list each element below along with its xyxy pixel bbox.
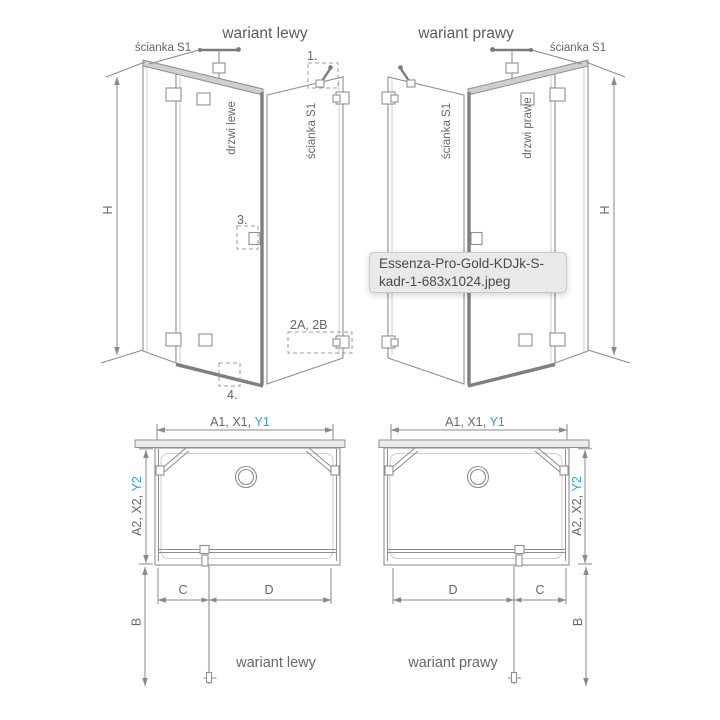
depth-dimension: A2, X2,Y2 bbox=[130, 449, 153, 564]
d-label: D bbox=[264, 583, 273, 597]
technical-drawing-canvas: H 1. 3. 2A, 2B 4. wariant lewy ścianka S… bbox=[0, 0, 720, 720]
b-label: B bbox=[130, 618, 144, 626]
width-dim-prefix: A1, X1, bbox=[210, 415, 251, 429]
right-view-title: wariant prawy bbox=[417, 25, 514, 42]
cd-dimension: D C bbox=[393, 568, 566, 605]
door-panel bbox=[469, 73, 555, 385]
open-door bbox=[508, 566, 521, 684]
depth-dim-prefix: A2, X2, bbox=[570, 495, 584, 536]
wall-bar bbox=[379, 440, 589, 448]
svg-text:A1, X1,Y1: A1, X1,Y1 bbox=[445, 415, 505, 429]
filename-tooltip-line2: kadr-1-683x1024.jpeg bbox=[379, 273, 557, 291]
cd-dimension: C D bbox=[158, 568, 331, 605]
svg-text:A1, X1,Y1: A1, X1,Y1 bbox=[210, 415, 270, 429]
wall-bar bbox=[135, 440, 345, 448]
depth-dimension: A2, X2,Y2 bbox=[570, 449, 592, 564]
svg-text:A2, X2,Y2: A2, X2,Y2 bbox=[130, 476, 144, 536]
b-dimension: B bbox=[571, 567, 586, 686]
callout-4-label: 4. bbox=[227, 388, 237, 402]
left-side-wall-label: ścianka S1 bbox=[306, 103, 318, 159]
left-wall-label: ścianka S1 bbox=[135, 42, 191, 54]
filename-tooltip: Essenza-Pro-Gold-KDJk-S- kadr-1-683x1024… bbox=[369, 252, 567, 293]
height-dimension: H bbox=[586, 62, 630, 363]
right-wall-label: ścianka S1 bbox=[550, 42, 606, 54]
depth-dim-accent: Y2 bbox=[130, 476, 144, 491]
d-label: D bbox=[448, 583, 457, 597]
left-plan-view: A1, X1,Y1 bbox=[130, 415, 346, 686]
svg-text:A2, X2,Y2: A2, X2,Y2 bbox=[570, 476, 584, 536]
right-plan-view: A1, X1,Y1 bbox=[379, 415, 592, 686]
c-label: C bbox=[535, 583, 544, 597]
width-dim-prefix: A1, X1, bbox=[445, 415, 486, 429]
left-plan-caption: wariant lewy bbox=[235, 655, 317, 671]
depth-dim-prefix: A2, X2, bbox=[130, 495, 144, 536]
right-door-label: drzwi prawe bbox=[522, 97, 534, 158]
c-label: C bbox=[178, 583, 187, 597]
width-dimension: A1, X1,Y1 bbox=[157, 415, 333, 441]
right-3d-view: H wariant prawy ścianka S1 ścianka S1 dr… bbox=[382, 25, 630, 386]
height-dimension: H bbox=[101, 62, 145, 363]
callout-3-label: 3. bbox=[237, 213, 247, 227]
open-door bbox=[204, 566, 217, 684]
callout-1-label: 1. bbox=[307, 49, 317, 63]
right-side-wall-label: ścianka S1 bbox=[441, 103, 453, 159]
b-label: B bbox=[571, 618, 585, 626]
height-label: H bbox=[598, 205, 612, 214]
shower-tray bbox=[155, 448, 340, 565]
width-dimension: A1, X1,Y1 bbox=[391, 415, 567, 441]
wall-panel bbox=[555, 63, 588, 363]
right-plan-caption: wariant prawy bbox=[407, 655, 498, 671]
depth-dim-accent: Y2 bbox=[570, 476, 584, 491]
wall-panel bbox=[143, 63, 176, 363]
width-dim-accent: Y1 bbox=[490, 415, 505, 429]
filename-tooltip-line1: Essenza-Pro-Gold-KDJk-S- bbox=[379, 255, 557, 273]
left-view-title: wariant lewy bbox=[221, 25, 308, 42]
width-dim-accent: Y1 bbox=[255, 415, 270, 429]
left-door-label: drzwi lewe bbox=[226, 101, 238, 155]
door-panel bbox=[176, 73, 262, 385]
side-wall-panel bbox=[267, 77, 343, 384]
height-label: H bbox=[101, 205, 115, 214]
b-dimension: B bbox=[130, 567, 146, 686]
left-3d-view: H 1. 3. 2A, 2B 4. wariant lewy ścianka S… bbox=[101, 25, 352, 402]
shower-tray bbox=[384, 448, 569, 565]
callout-2ab-label: 2A, 2B bbox=[290, 318, 328, 332]
door-handle bbox=[471, 233, 482, 245]
